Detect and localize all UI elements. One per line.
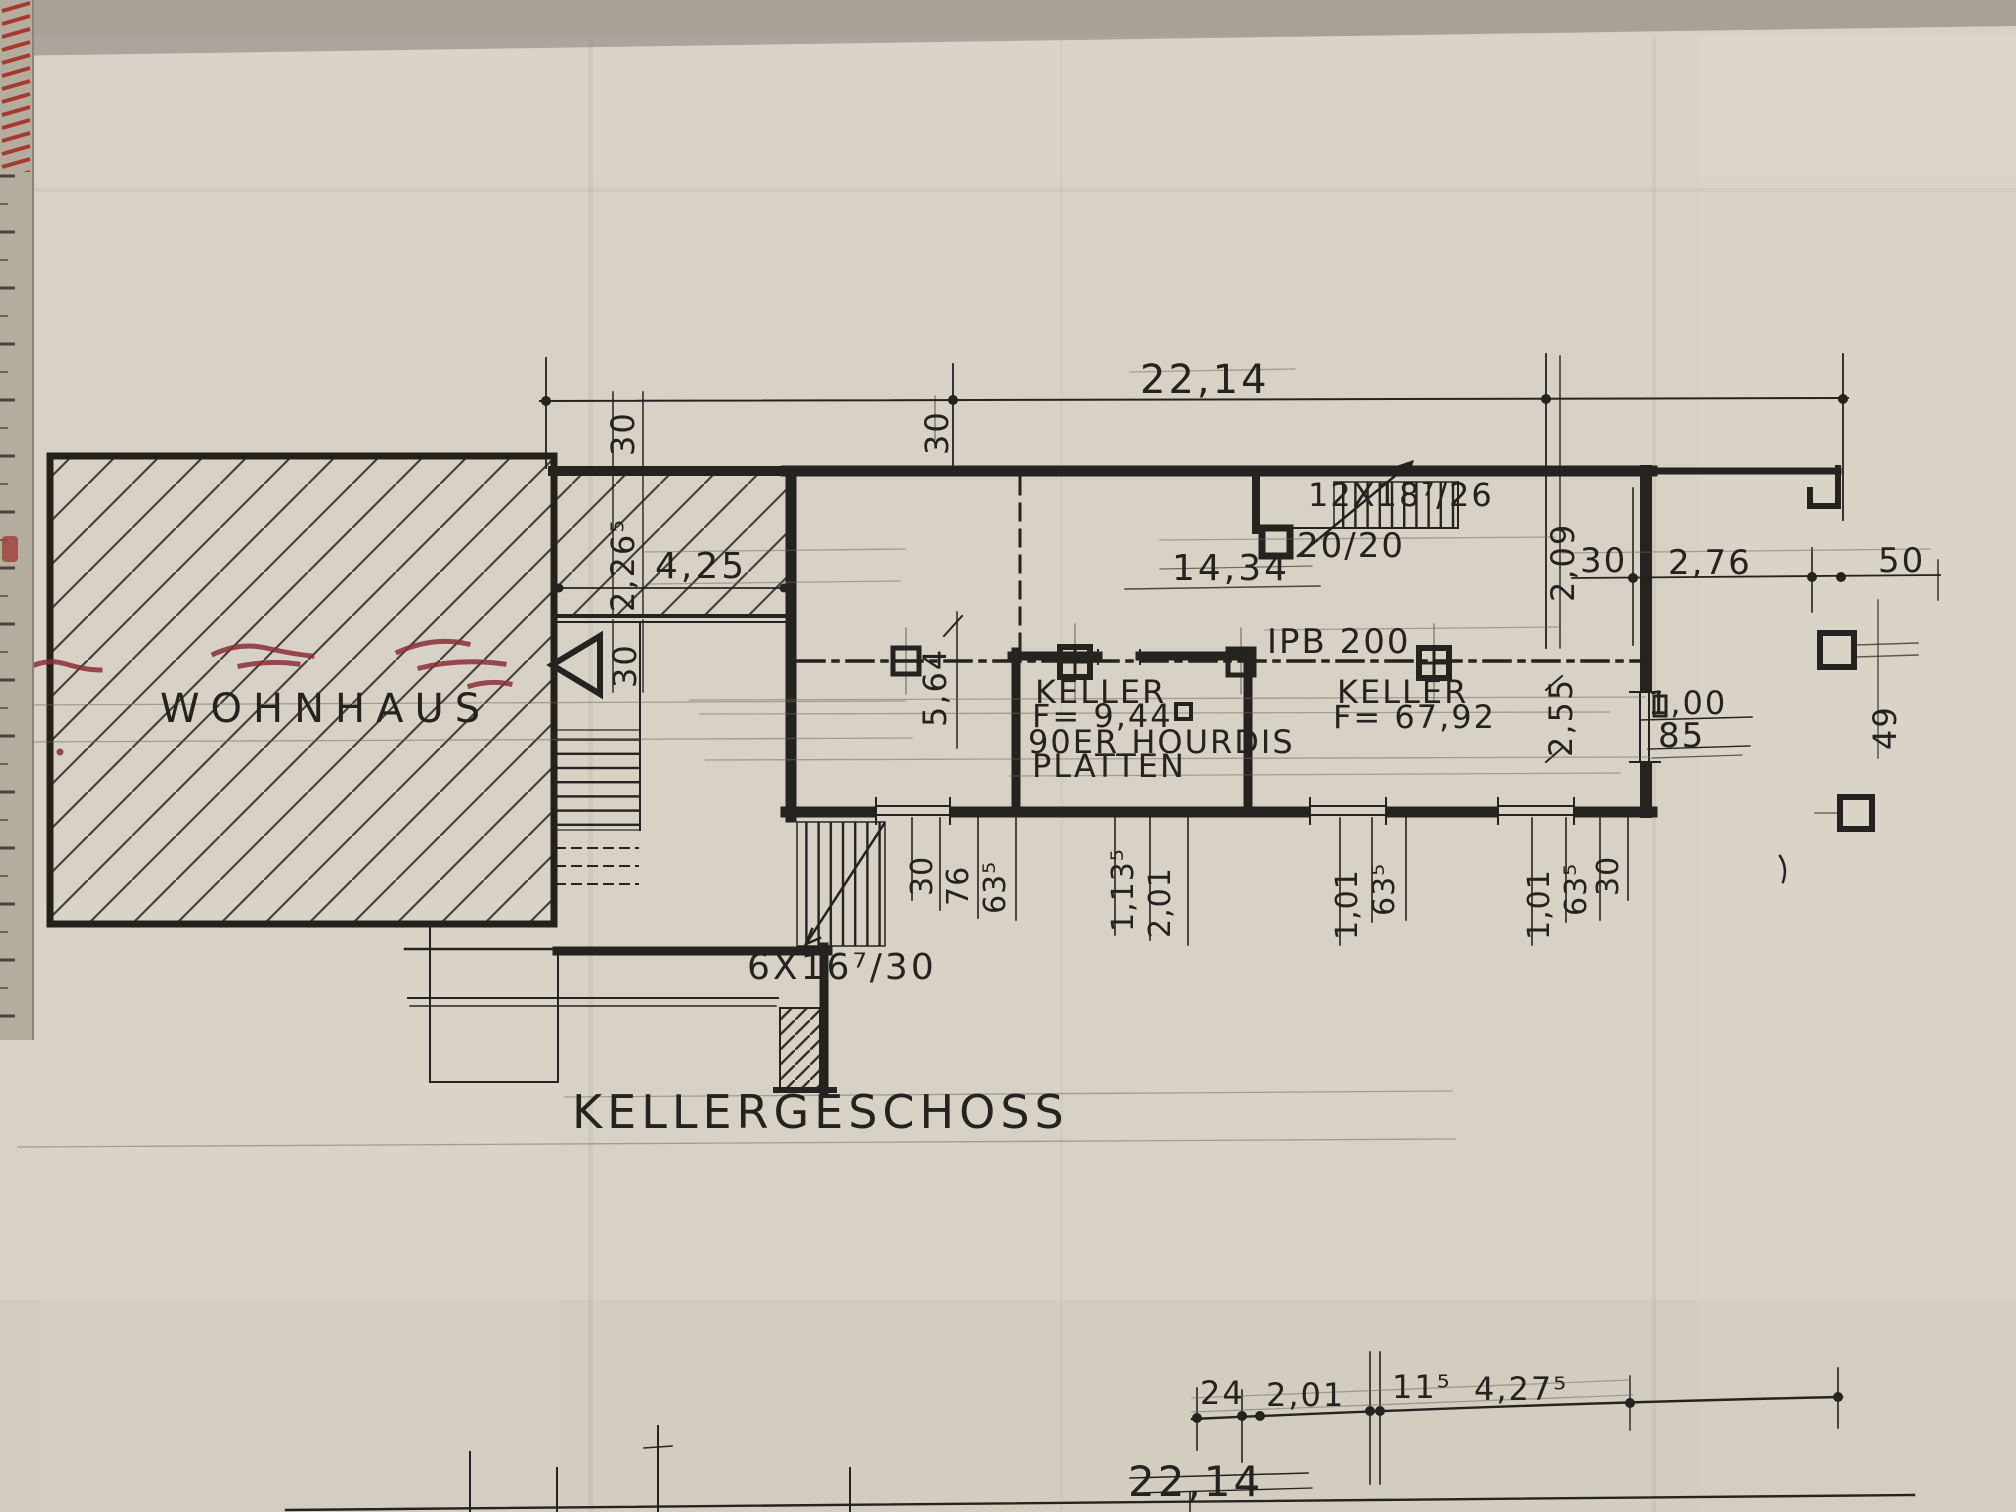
dim-chain-0: 24	[1200, 1374, 1245, 1412]
blueprint-drawing: WOHNHAUS KELLERGESCHOSS KELLER F= 9,44 K…	[0, 0, 2016, 1512]
label-keller-large-area: F= 67,92	[1333, 698, 1496, 736]
dim-wall30-top: 30	[918, 410, 956, 455]
label-beam-ipb200: IPB 200	[1267, 622, 1411, 662]
dim-anbau-wall-bottom: 30	[606, 643, 644, 688]
label-wohnhaus: WOHNHAUS	[160, 686, 491, 732]
dim-bottom-0: 30	[905, 856, 940, 896]
ruler-red-mark	[2, 536, 18, 562]
dim-bottom-2: 63⁵	[978, 861, 1013, 914]
dim-chain-1: 2,01	[1266, 1376, 1345, 1414]
dim-bottom-4: 2,01	[1143, 867, 1178, 938]
label-slab-note-line2: PLATTEN	[1032, 747, 1186, 785]
dim-bottom-1: 76	[941, 866, 976, 906]
dim-anbau-wall-top: 30	[604, 411, 642, 456]
dim-door-clear: 85	[1658, 716, 1705, 756]
dim-bottom-total: 22,14	[1128, 1457, 1263, 1506]
dim-interior-width: 14,34	[1172, 548, 1290, 589]
dim-right-depth-top: 2,09	[1544, 523, 1582, 602]
dim-chain-2: 11⁵	[1392, 1368, 1452, 1406]
dim-right-wall: 30	[1580, 541, 1627, 581]
label-column-20x20: 20/20	[1297, 526, 1405, 566]
stair-lower	[797, 822, 885, 946]
dim-bottom-9: 30	[1591, 856, 1626, 896]
dim-anbau-depth: 2,26⁵	[604, 518, 642, 612]
dim-bottom-3: 1,13⁵	[1106, 848, 1141, 932]
hatched-pier	[780, 1008, 820, 1088]
dim-bottom-6: 63⁵	[1367, 863, 1402, 916]
dim-porch-offset: 50	[1878, 541, 1925, 581]
dim-pier: 49	[1866, 705, 1904, 750]
dim-porch-width: 2,76	[1668, 543, 1752, 583]
dim-bottom-7: 1,01	[1522, 869, 1557, 940]
dim-chain-3: 4,27⁵	[1474, 1370, 1568, 1408]
ruler	[0, 0, 34, 1040]
dim-top-total: 22,14	[1140, 357, 1270, 403]
dim-bottom-8: 63⁵	[1559, 863, 1594, 916]
dim-right-depth-bottom: 2,55	[1542, 678, 1580, 757]
label-stair-lower: 6X16⁷/30	[747, 947, 937, 988]
dim-anbau-width: 4,25	[655, 546, 747, 587]
dim-bottom-5: 1,01	[1330, 869, 1365, 940]
drawing-title: KELLERGESCHOSS	[572, 1085, 1069, 1139]
label-stair-upper: 12X18⁷/26	[1308, 476, 1494, 514]
dim-room-depth: 5,64	[916, 648, 954, 727]
blueprint-photo: WOHNHAUS KELLERGESCHOSS KELLER F= 9,44 K…	[0, 0, 2016, 1512]
